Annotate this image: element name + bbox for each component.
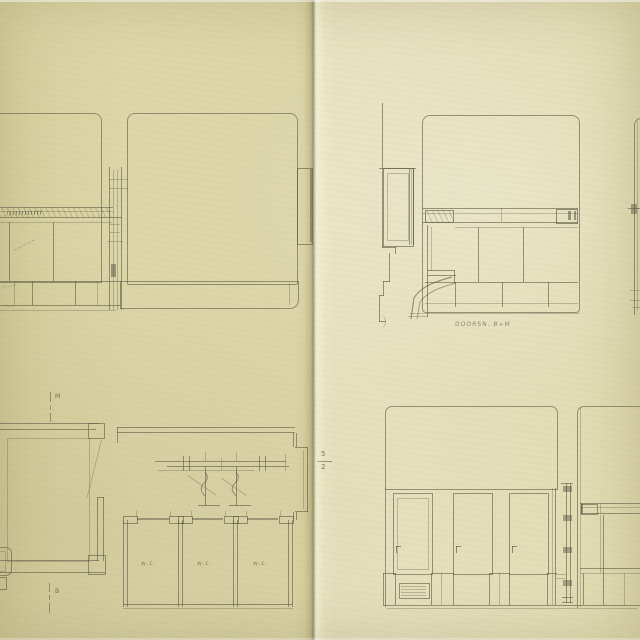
wall-line [296,433,297,447]
rail-junction [631,204,637,214]
section-caption: DOORSN. B+M [455,322,511,328]
pipe-elbow [198,505,220,506]
door-handle [396,546,397,553]
post-line [117,170,118,310]
scan-edge [0,0,640,2]
wall-line [117,427,295,428]
panel-joint [523,227,524,282]
rail-line [0,217,122,218]
line [630,290,640,291]
line [455,227,578,228]
section-marker-label: B [55,589,59,595]
line [110,232,120,233]
door-handle [456,546,457,553]
door-stub [279,516,294,524]
hinge-tick [246,511,247,517]
line [628,208,640,209]
wall-line [296,512,297,520]
rail-end-cap [581,504,598,515]
wall-line [97,497,104,498]
stall-back-wall [123,608,293,609]
valve-tick [259,456,260,471]
line [110,224,120,225]
wall-panel [0,113,102,283]
wall-corner [88,555,106,575]
door-stub [233,516,248,524]
stall-wall [127,520,128,607]
panel-joint [600,515,601,573]
sheet-number: 5 [321,451,325,458]
line [562,602,573,603]
room-inner-face [7,438,90,562]
skirting-joint [383,573,384,605]
skirting-joint [603,573,604,605]
hinge-tick [225,511,226,517]
line [630,300,640,301]
floor-line [410,313,580,314]
door-stub [123,516,138,524]
wc-label: w.c. [197,561,213,568]
door-handle [512,546,513,553]
line [556,578,566,579]
wall-panel [127,113,298,285]
basin-inner [0,551,6,572]
grille-slat [401,592,426,593]
stall-back-wall [123,604,293,605]
valve-tick [189,456,190,471]
door-stub [178,516,193,524]
line [0,222,112,223]
pipe-line [158,470,254,471]
grille-slat [401,586,426,587]
hinge-tick [191,511,192,517]
skirting-joint [455,282,456,307]
door-leaf [137,518,169,520]
stall-wall [182,520,183,607]
wc-label: w.c. [141,561,157,568]
wall-profile [383,281,384,296]
skirting-line [580,568,640,569]
skirting-band [120,281,299,309]
stall-wall [123,520,124,607]
grille-slat [401,589,426,590]
line [109,179,128,180]
stall-wall [233,520,234,607]
door-jamb [88,423,105,439]
line [310,169,312,242]
wc-door [509,493,549,575]
stall-wall [237,520,238,607]
door-leaf [192,518,223,520]
section-line [49,595,50,600]
fraction-bar [317,461,332,462]
paper-fold-line [304,0,324,640]
panel-joint [53,222,54,281]
bench-post [431,227,432,271]
jamb-line [413,169,414,245]
stall-wall [288,520,289,607]
line [556,574,566,575]
wall-edge [552,488,553,605]
skirting-line [580,573,640,574]
wall-profile [389,253,390,282]
skirting-joint [547,573,548,605]
skirting-line [431,573,453,574]
line [574,211,576,220]
pencil-note: ~~ [5,304,15,310]
wc-label: w.c. [253,561,269,568]
wall-line [103,497,104,561]
riser [236,452,237,461]
floor-line [408,316,428,317]
sheet-number: 2 [321,464,325,471]
line [561,483,573,484]
skirting-joint [502,282,503,307]
skirting-joint [32,281,33,305]
rail-line [422,208,578,209]
stall-wall [178,520,179,607]
jamb-line [409,169,410,245]
section-line [49,583,50,592]
line [107,241,123,242]
skirting-joint [453,573,454,605]
wall-edge [555,488,556,605]
hinge-tick [136,511,137,517]
panel-joint [9,222,10,281]
skirting-line [0,281,122,282]
pipe-elbow [229,505,251,506]
skirting-joint [499,573,500,605]
wall-profile [383,281,390,282]
side-opening [307,447,308,512]
line [568,211,571,220]
wall-line [0,429,96,430]
pipe-bracket [563,515,572,521]
bench-top [427,270,455,271]
wall-profile [395,247,396,254]
panel-joint [603,515,604,573]
pipe-end [285,454,286,471]
fixture [0,577,7,590]
wall-line [117,432,295,433]
rail-end-cap [425,210,454,223]
grille-slat [401,595,426,596]
line [632,307,640,308]
line [501,208,502,222]
skirting-joint [624,573,625,605]
trap-symbol [199,472,213,500]
skirting-joint [431,573,432,605]
skirting-joint [441,573,442,605]
skirting-line [0,305,120,306]
scanned-drawing-sheet: ~~~~~ ~~~ ~~ [0,0,640,640]
line [303,450,304,509]
valve-tick [265,456,266,471]
wall-line [293,433,294,447]
skirting-joint [395,573,396,605]
skirting-joint [583,573,584,605]
valve-tick [221,458,222,470]
skirting-joint [489,573,490,605]
section-line [49,603,50,613]
panel-joint [478,227,479,282]
line [637,121,638,311]
door-frame-inner [387,173,409,241]
section-line [50,392,51,402]
pipe-bracket [563,580,572,586]
pencil-note: ~~~ [2,283,18,291]
hinge-tick [280,511,281,517]
floor-line [387,608,637,609]
line [600,503,601,513]
section-line [50,413,51,422]
wc-door-panel [397,498,429,570]
section-marker-label: M [55,394,60,400]
wall-line [0,423,99,424]
pencil-hook [378,315,386,328]
skirting-joint [509,573,510,605]
skirting-joint [97,281,98,305]
skirting-joint [75,281,76,305]
line [289,283,290,305]
pipe-bracket [563,547,572,553]
line [581,504,583,513]
line [109,188,128,189]
valve-tick [183,456,184,471]
wall-line [117,427,118,443]
post-line [113,170,114,310]
skirting-joint [548,282,549,307]
wall-panel [385,406,558,490]
floor-line [0,310,116,311]
wall-profile [382,247,396,248]
riser [205,452,206,461]
trap-symbol [230,472,244,500]
stall-wall [292,520,293,607]
line [562,597,573,598]
pipe-line [167,466,289,467]
wc-door [453,493,493,575]
wall-edge [385,488,386,607]
jamb-line [411,169,412,245]
valve-mark [111,264,116,277]
door-leaf [247,518,278,520]
hinge-tick [170,511,171,517]
pipe-bracket [563,486,572,492]
wall-line [97,497,98,561]
section-line [50,405,51,410]
